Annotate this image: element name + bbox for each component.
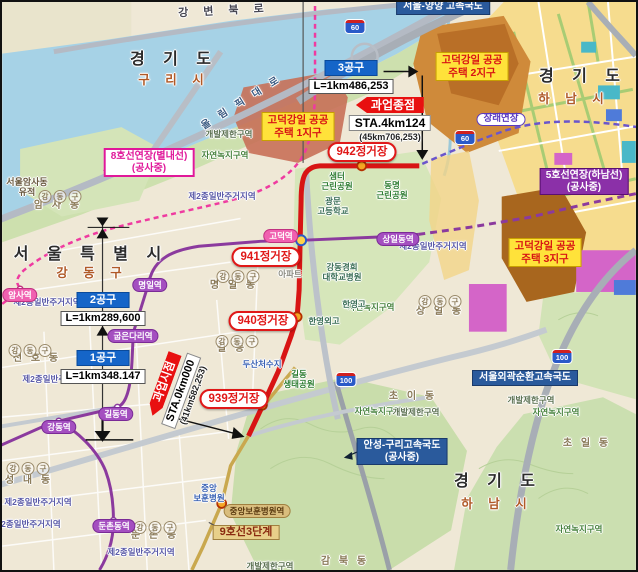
park-label-gildong-eco: 길동생태공원 <box>283 370 314 390</box>
gu-badge-seongnae-circle-char: 강 <box>7 462 20 475</box>
region-label-gyeonggi-do-guri: 경 기 도 <box>130 51 218 69</box>
station-gubeundari: 굽은다리역 <box>107 329 158 343</box>
region-label-seoul: 서 울 특 별 시 <box>14 246 168 264</box>
zone-label-greenbelt-4: 자연녹지구역 <box>533 408 580 418</box>
facility-label-apartment: 아파트 <box>278 270 301 280</box>
gu-badge-amsa-circle-char: 강 <box>39 190 52 203</box>
gu-badge-cheonho-circle-char: 구 <box>39 344 52 357</box>
label-future-extension: 장래연장 <box>477 113 526 126</box>
zone-label-residential-1: 제2종일반주거지역 <box>188 192 255 202</box>
gu-badge-dunchon-circle-char: 구 <box>164 521 177 534</box>
station-bohun-hospital: 중앙보훈병원역 <box>224 504 291 518</box>
region-label-gyeonggi-do-hanam-top: 경 기 도 <box>539 68 627 86</box>
route-shield-100-a: 100 <box>552 349 573 364</box>
zone-label-residential-5: 제2종일반주거지역 <box>4 498 71 508</box>
gu-badge-gildong-circle-char: 동 <box>231 335 244 348</box>
facility-label-kyunghee-hospital: 강동경희대학교병원 <box>322 263 361 283</box>
line-label-line8-extension: 8호선연장(별내선)(공사중) <box>104 148 195 177</box>
zone-label-greenbelt-5: 자연녹지구역 <box>556 525 603 535</box>
gu-badge-amsa-circle-char: 구 <box>69 190 82 203</box>
gu-badge-seongnae: 강동구 <box>6 458 51 476</box>
gu-badge-gildong-circle-char: 구 <box>246 335 259 348</box>
gu-badge-dunchon-circle-char: 강 <box>134 521 147 534</box>
dong-label-seongnae: 성 내 동 <box>5 475 53 487</box>
dong-label-gambuk: 감 북 동 <box>321 556 369 568</box>
district-label-godeok-gangil-1: 고덕강일 공공주택 1지구 <box>262 112 335 141</box>
endpoint-km-note: (45km706,253) <box>349 132 431 142</box>
road-label-outer-ring: 서울외곽순환고속국도 <box>472 370 578 386</box>
region-label-hanam-si-bottom: 하 남 시 <box>461 497 532 511</box>
section-1-name: 1공구 <box>77 350 129 366</box>
region-label-gyeonggi-do-hanam-bottom: 경 기 도 <box>454 473 542 491</box>
district-label-godeok-gangil-2: 고덕강일 공공주택 2지구 <box>436 52 509 81</box>
station-gangdong: 강동역 <box>41 420 76 434</box>
endpoint-sta: STA.4km124 <box>349 115 431 131</box>
gu-badge-amsa-circle-char: 동 <box>54 190 67 203</box>
gu-badge-myeongil-circle-char: 강 <box>217 270 230 283</box>
line-label-line9-phase3: 9호선3단계 <box>213 525 280 540</box>
project-endpoint-label: 과업종점 STA.4km124 (45km706,253) <box>349 96 431 142</box>
gu-badge-sangil-circle-char: 강 <box>419 295 432 308</box>
gu-badge-seongnae-circle-char: 구 <box>37 462 50 475</box>
district-label-godeok-gangil-3: 고덕강일 공공주택 3지구 <box>509 238 582 267</box>
gu-badge-seongnae-circle-char: 동 <box>22 462 35 475</box>
road-label-seoul-yangyang: 서울-양양 고속국도 <box>396 0 490 15</box>
zone-label-restricted-4: 개발제한구역 <box>247 562 294 572</box>
facility-label-hanyoung-high: 한영고 <box>342 300 365 310</box>
section-1-label: 1공구 L=1km348.147 <box>61 348 146 384</box>
gu-badge-cheonho-circle-char: 강 <box>9 344 22 357</box>
region-label-hanam-si-top: 하 남 시 <box>538 92 609 106</box>
road-label-anseong-guri: 안성-구리고속국도(공사중) <box>357 438 448 465</box>
section-2-label: 2공구 L=1km289,600 <box>61 290 146 326</box>
endpoint-title: 과업종점 <box>356 97 424 113</box>
zone-label-residential-6: 제2종일반주거지역 <box>0 520 61 530</box>
gu-badge-myeongil: 강동구 <box>216 266 261 284</box>
gu-badge-gildong: 강동구 <box>215 331 260 349</box>
gu-badge-dunchon: 강동구 <box>133 517 178 535</box>
project-station-942: 942정거장 <box>328 142 397 162</box>
gu-badge-myeongil-circle-char: 동 <box>232 270 245 283</box>
section-2-length: L=1km289,600 <box>61 311 146 326</box>
station-sangildong: 상일동역 <box>376 232 419 246</box>
zone-label-restricted-3: 개발제한구역 <box>508 396 555 406</box>
station-amsa: 암사역 <box>2 288 37 302</box>
gu-badge-sangil: 강동구 <box>418 291 463 309</box>
region-label-gangdong-gu: 강 동 구 <box>56 266 127 280</box>
section-3-label: 3공구 L=1km486,253 <box>309 58 394 94</box>
gu-badge-cheonho-circle-char: 동 <box>24 344 37 357</box>
zone-label-restricted-2: 개발제한구역 <box>393 408 440 418</box>
gu-badge-amsa: 강동구 <box>38 186 83 204</box>
route-shield-60-b: 60 <box>455 130 476 145</box>
section-3-name: 3공구 <box>325 60 377 76</box>
park-label-saemteo: 샘터근린공원 <box>321 172 352 192</box>
facility-label-bohun-hospital: 중앙보훈병원 <box>193 484 224 504</box>
project-station-939: 939정거장 <box>200 389 269 409</box>
facility-label-gwangmun-high: 광문고등학교 <box>317 197 348 217</box>
gu-badge-myeongil-circle-char: 구 <box>247 270 260 283</box>
route-shield-60-a: 60 <box>345 19 366 34</box>
facility-label-dusan-reservoir: 두산처수지 <box>242 360 281 370</box>
section-2-name: 2공구 <box>77 292 129 308</box>
line-label-line5-extension: 5호선연장(하남선)(공사중) <box>540 168 629 195</box>
park-label-dongmyeong: 동명근린공원 <box>376 181 407 201</box>
facility-label-hanyoung-foreign: 한영외고 <box>308 317 339 327</box>
zone-label-residential-7: 제2종일반주거지역 <box>107 548 174 558</box>
road-label-gangbyeon-bukro: 강 변 북 로 <box>178 3 270 20</box>
project-station-941: 941정거장 <box>232 247 301 267</box>
section-1-length: L=1km348.147 <box>61 369 146 384</box>
station-godeok: 고덕역 <box>263 229 298 243</box>
station-gildong: 길동역 <box>98 407 133 421</box>
gu-badge-gildong-circle-char: 강 <box>216 335 229 348</box>
gu-badge-sangil-circle-char: 동 <box>434 295 447 308</box>
gu-badge-dunchon-circle-char: 동 <box>149 521 162 534</box>
project-station-940: 940정거장 <box>229 311 298 331</box>
dong-label-choil: 초 일 동 <box>563 438 611 450</box>
gu-badge-cheonho: 강동구 <box>8 340 53 358</box>
station-dunchondong: 둔촌동역 <box>92 519 135 533</box>
section-3-length: L=1km486,253 <box>309 79 394 94</box>
route-shield-100-b: 100 <box>336 372 357 387</box>
dong-label-choi: 초 이 동 <box>389 391 437 403</box>
project-map: 강 변 북 로경 기 도구 리 시올 림 픽 대 로경 기 도하 남 시서 울 … <box>0 0 638 572</box>
region-label-guri-si: 구 리 시 <box>138 73 209 87</box>
zone-label-greenbelt-1: 자연녹지구역 <box>202 151 249 161</box>
zone-label-restricted-1: 개발제한구역 <box>206 130 253 140</box>
gu-badge-sangil-circle-char: 구 <box>449 295 462 308</box>
